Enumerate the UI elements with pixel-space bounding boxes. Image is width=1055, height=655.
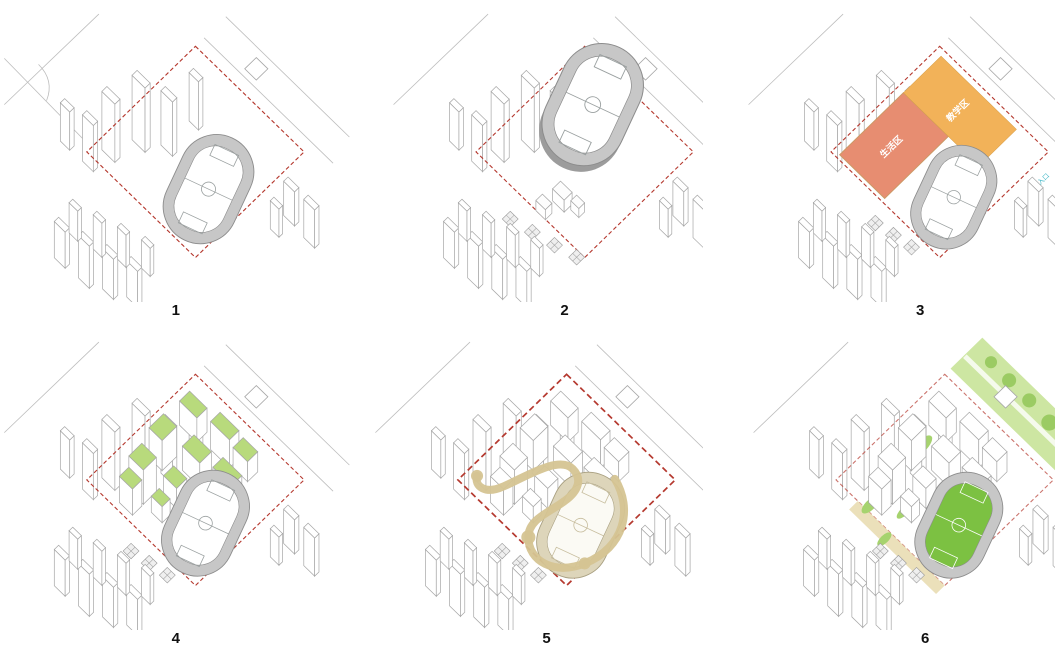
neighbour-building: [245, 58, 268, 81]
neighbour-building: [245, 385, 268, 408]
process-diagram-sheet: 1 2 生活区教学区校园入口 3 4 5 6: [0, 0, 1055, 655]
panel-6-illustration: [703, 328, 1055, 630]
panel-5-number: 5: [371, 630, 723, 652]
panel-1-number: 1: [0, 302, 352, 324]
panel-5-illustration: [352, 328, 704, 630]
diagram-panel-1: 1: [0, 0, 352, 328]
foreground-buildings: [443, 177, 703, 302]
panel-3-number: 3: [744, 302, 1055, 324]
panel-4-number: 4: [0, 630, 352, 652]
panel-2-number: 2: [389, 302, 741, 324]
diagram-panel-3: 生活区教学区校园入口 3: [703, 0, 1055, 328]
panel-1-illustration: [0, 0, 352, 302]
neighbour-building: [616, 385, 639, 408]
neighbour-building: [989, 58, 1012, 81]
running-track: [525, 30, 657, 186]
context-buildings: [4, 14, 349, 172]
panel-4-illustration: [0, 328, 352, 630]
diagram-panel-5: 5: [352, 328, 704, 655]
diagram-panel-6: 6: [703, 328, 1055, 655]
panel-6-number: 6: [749, 630, 1055, 652]
diagram-panel-2: 2: [352, 0, 704, 328]
panel-3-illustration: 生活区教学区校园入口: [703, 0, 1055, 302]
diagram-panel-4: 4: [0, 328, 352, 655]
panel-2-illustration: [352, 0, 704, 302]
